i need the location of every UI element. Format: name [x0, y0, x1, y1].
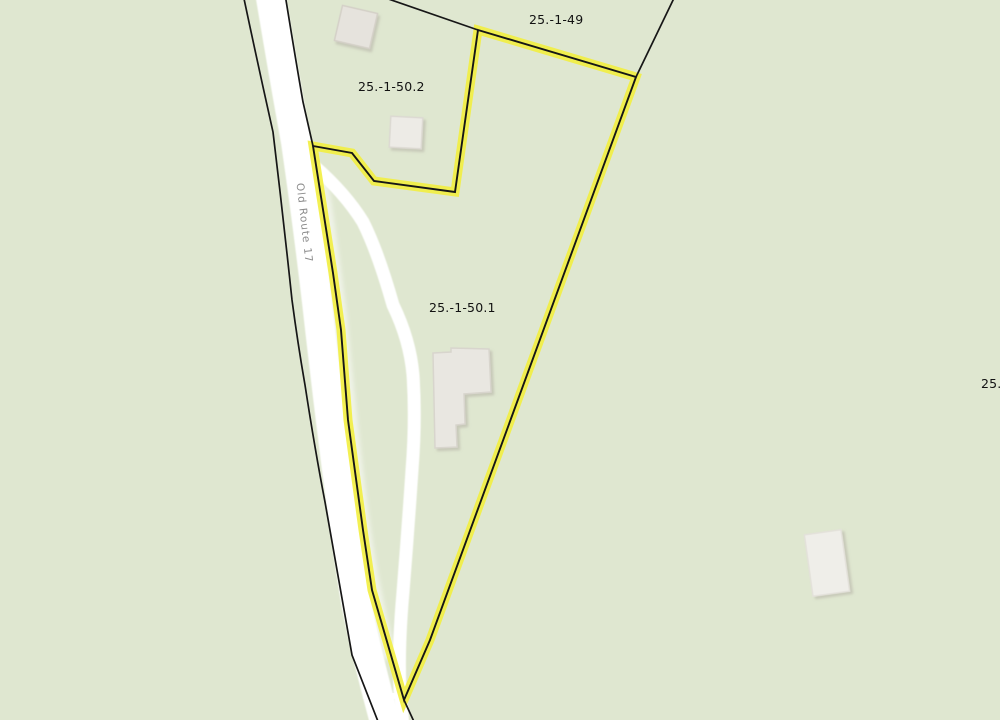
land-base	[0, 0, 1000, 720]
map-canvas[interactable]: 25.-1-49 25.-1-50.2 25.-1-50.1 25. Old R…	[0, 0, 1000, 720]
building-footprint-north	[334, 5, 377, 48]
parcel-label-25-1-50-1: 25.-1-50.1	[429, 300, 496, 315]
building-footprint-parcel-50-2	[389, 116, 423, 149]
building-footprint-east	[804, 530, 849, 597]
parcel-label-25-1-49: 25.-1-49	[529, 12, 583, 27]
map-layers	[0, 0, 1000, 720]
driveway-connector	[368, 694, 399, 698]
parcel-label-east-truncated: 25.	[981, 376, 1000, 391]
parcel-label-25-1-50-2: 25.-1-50.2	[358, 79, 425, 94]
